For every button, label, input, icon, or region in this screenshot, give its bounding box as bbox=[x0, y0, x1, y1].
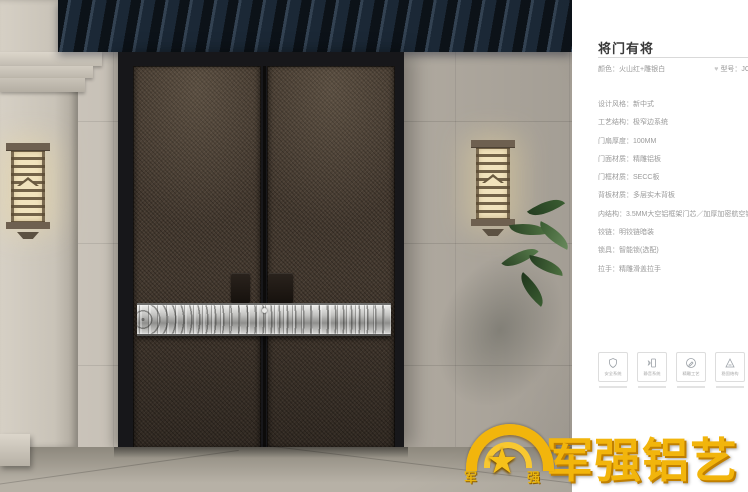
feature-label: 精雕工艺 bbox=[682, 371, 699, 377]
spec-line: 设计风格：新中式 bbox=[598, 96, 748, 114]
feature-caption-line bbox=[599, 386, 627, 388]
feature-box: 稳固结构 bbox=[715, 352, 745, 382]
color-model-row: 颜色：火山红+雕银白 ♥ 型号：JC bbox=[598, 64, 748, 74]
stability-triangle-icon bbox=[724, 357, 736, 369]
feature-icon-row: 安全系统 静音系统 bbox=[598, 352, 748, 388]
product-title: 将门有将 bbox=[598, 38, 654, 57]
spec-line: 工艺结构：极窄边系统 bbox=[598, 114, 748, 132]
lantern-chevron-ornament bbox=[482, 174, 504, 183]
product-photo bbox=[0, 0, 572, 492]
brand-name: 军强铝艺 bbox=[546, 422, 738, 491]
feature-label: 静音系统 bbox=[643, 371, 660, 377]
spec-line: 门面材质：精雕铝板 bbox=[598, 151, 748, 169]
star-icon: ★ bbox=[486, 444, 518, 480]
spec-list: 设计风格：新中式 工艺结构：极窄边系统 门扇厚度：100MM 门面材质：精雕铝板… bbox=[598, 96, 748, 279]
feature-box: 安全系统 bbox=[598, 352, 628, 382]
spec-line: 锁具：智能锁(选配) bbox=[598, 242, 748, 260]
model-label: 型号：JC bbox=[720, 64, 748, 74]
feature-box: 精雕工艺 bbox=[676, 352, 706, 382]
spec-line: 门扇厚度：100MM bbox=[598, 133, 748, 151]
soundwave-door-icon bbox=[646, 357, 658, 369]
spec-line: 铰链：明铰链暗装 bbox=[598, 224, 748, 242]
heart-icon: ♥ bbox=[714, 66, 718, 73]
feature-stability: 稳固结构 bbox=[715, 352, 745, 388]
model-group: ♥ 型号：JC bbox=[714, 64, 748, 74]
brand-emblem: ★ 军 强 bbox=[458, 422, 546, 490]
carving-pen-icon bbox=[685, 357, 697, 369]
feature-box: 静音系统 bbox=[637, 352, 667, 382]
feature-caption-line bbox=[638, 386, 666, 388]
feature-silence: 静音系统 bbox=[637, 352, 667, 388]
feature-carving: 精雕工艺 bbox=[676, 352, 706, 388]
spec-line: 门框材质：SECC板 bbox=[598, 169, 748, 187]
feature-label: 稳固结构 bbox=[721, 371, 738, 377]
spec-line: 背板材质：多层实木背板 bbox=[598, 187, 748, 205]
spec-line: 内结构：3.5MM大空铝框架门芯／加厚加密航空铝蜂 bbox=[598, 206, 748, 224]
shield-icon bbox=[607, 357, 619, 369]
brand-logo: ★ 军 强 军强铝艺 bbox=[458, 420, 748, 492]
photo-vignette bbox=[0, 0, 572, 492]
feature-safety: 安全系统 bbox=[598, 352, 628, 388]
feature-label: 安全系统 bbox=[604, 371, 621, 377]
feature-caption-line bbox=[677, 386, 705, 388]
emblem-char-right: 强 bbox=[527, 467, 540, 486]
emblem-char-left: 军 bbox=[464, 467, 477, 486]
feature-caption-line bbox=[716, 386, 744, 388]
lantern-chevron-ornament bbox=[17, 177, 39, 186]
color-label: 颜色：火山红+雕银白 bbox=[598, 64, 665, 74]
spec-panel: 将门有将 颜色：火山红+雕银白 ♥ 型号：JC 设计风格：新中式 工艺结构：极窄… bbox=[598, 0, 748, 492]
product-brochure-page: 将门有将 颜色：火山红+雕银白 ♥ 型号：JC 设计风格：新中式 工艺结构：极窄… bbox=[0, 0, 748, 492]
title-divider bbox=[598, 57, 748, 58]
spec-line: 拉手：精雕滑盖拉手 bbox=[598, 261, 748, 279]
